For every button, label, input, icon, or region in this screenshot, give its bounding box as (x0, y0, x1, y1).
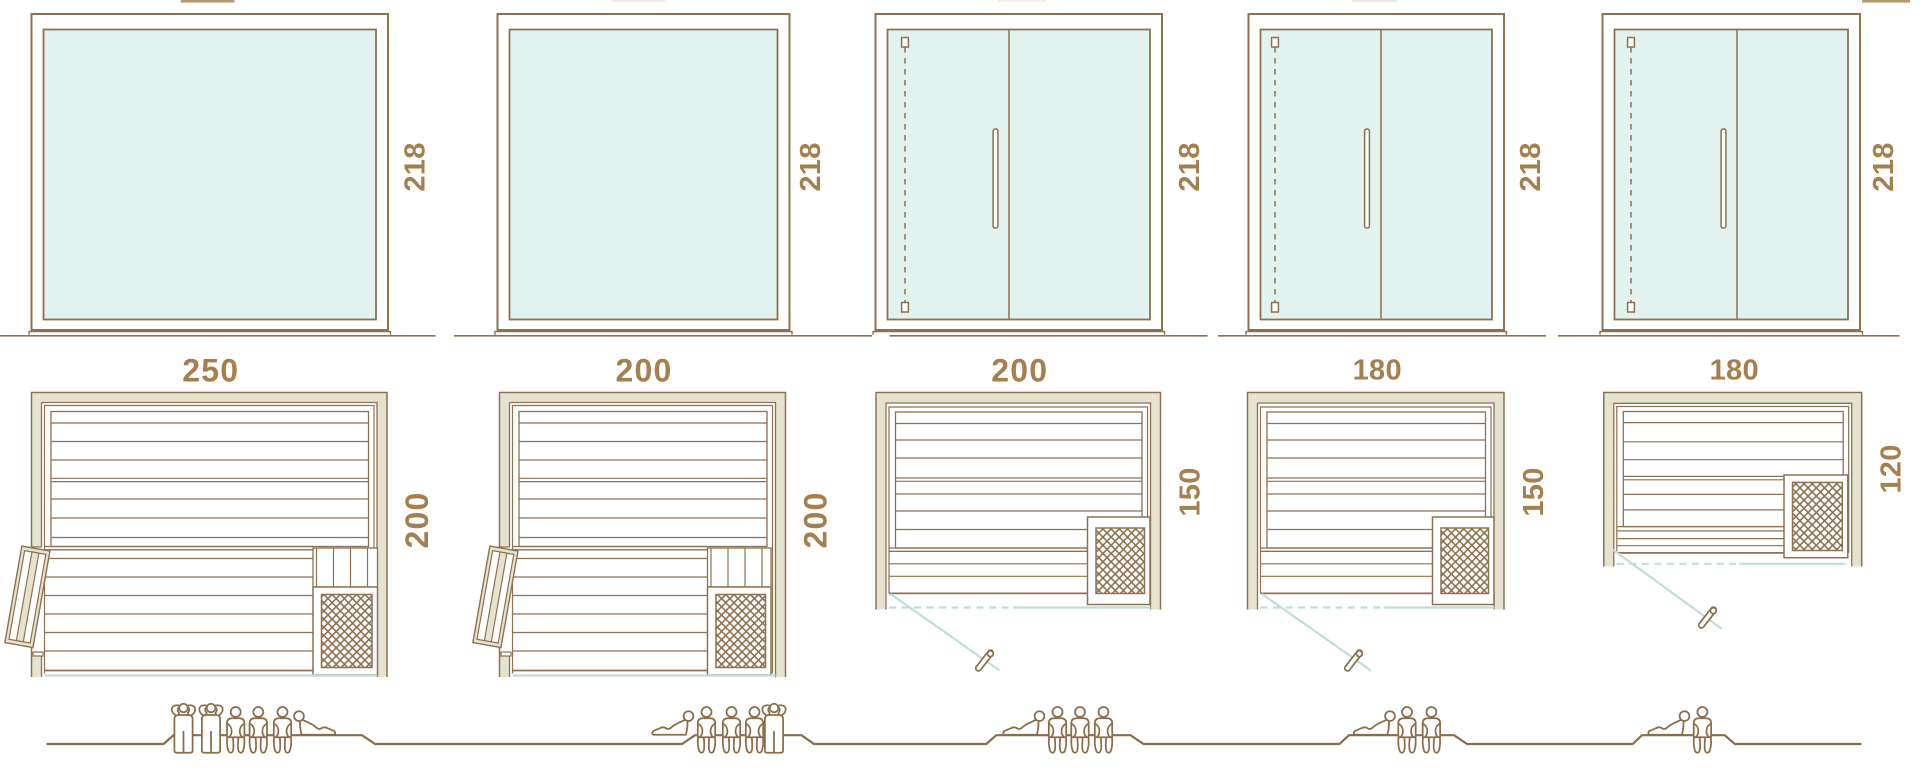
svg-text:200: 200 (798, 492, 834, 549)
svg-text:250: 250 (182, 352, 239, 388)
svg-text:200: 200 (991, 352, 1048, 388)
svg-text:180: 180 (1353, 354, 1402, 386)
svg-text:218: 218 (400, 142, 432, 191)
svg-text:218: 218 (1515, 142, 1547, 191)
svg-text:200: 200 (616, 352, 673, 388)
svg-text:218: 218 (1868, 142, 1900, 191)
svg-text:218: 218 (1174, 142, 1206, 191)
svg-text:120: 120 (1876, 444, 1908, 493)
svg-text:200: 200 (399, 492, 435, 549)
svg-text:150: 150 (1518, 467, 1550, 516)
svg-text:150: 150 (1175, 467, 1207, 516)
svg-text:180: 180 (1710, 354, 1759, 386)
svg-text:218: 218 (795, 142, 827, 191)
